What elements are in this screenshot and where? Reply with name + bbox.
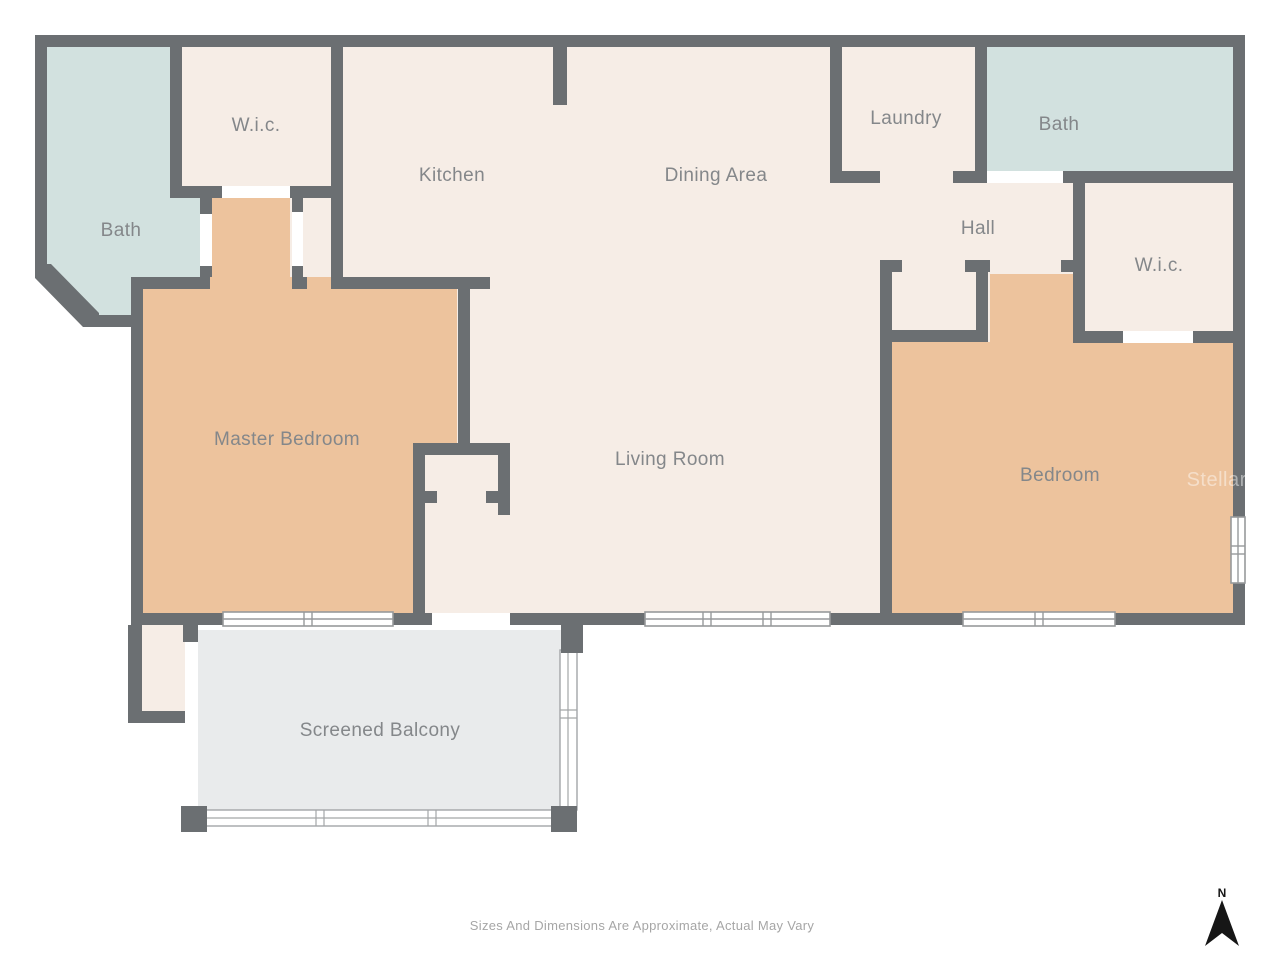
disclaimer-text: Sizes And Dimensions Are Approximate, Ac…: [470, 918, 815, 933]
floor-plan-canvas: W.i.c. Bath Kitchen Dining Area Laundry …: [0, 0, 1280, 960]
north-label: N: [1218, 886, 1227, 900]
bedroom-entry-area: [990, 274, 1073, 342]
side-strip-area: [142, 625, 185, 711]
watermark-text: StellarMLS: [1187, 469, 1280, 491]
master-bedroom-window: [223, 612, 393, 626]
room-label-laundry: Laundry: [870, 108, 942, 129]
bedroom-side-window: [1231, 517, 1245, 583]
room-label-wic-1: W.i.c.: [232, 115, 281, 136]
north-arrow-icon: [1205, 900, 1239, 946]
room-label-bedroom: Bedroom: [1020, 465, 1100, 486]
room-label-kitchen: Kitchen: [419, 165, 485, 186]
corridor-area: [212, 198, 290, 289]
exterior-cutout: [35, 278, 131, 625]
closet-strip-area: [425, 455, 510, 613]
balcony-bottom-screen: [205, 810, 555, 826]
room-label-living-room: Living Room: [615, 449, 725, 470]
room-label-dining-area: Dining Area: [665, 165, 768, 186]
room-label-bath-1: Bath: [101, 220, 142, 241]
balcony-right-screen: [560, 650, 577, 810]
master-bedroom-area: [143, 289, 457, 613]
room-label-wic-2: W.i.c.: [1135, 255, 1184, 276]
bath-2-area: [987, 47, 1233, 171]
bedroom-bottom-window: [963, 612, 1115, 626]
room-label-bath-2: Bath: [1039, 114, 1080, 135]
room-label-screened-balcony: Screened Balcony: [300, 720, 461, 741]
room-label-hall: Hall: [961, 218, 995, 239]
north-compass: N: [1205, 886, 1239, 946]
floor-plan-page: W.i.c. Bath Kitchen Dining Area Laundry …: [0, 0, 1280, 960]
room-label-master-bedroom: Master Bedroom: [214, 429, 360, 450]
living-room-window: [645, 612, 830, 626]
